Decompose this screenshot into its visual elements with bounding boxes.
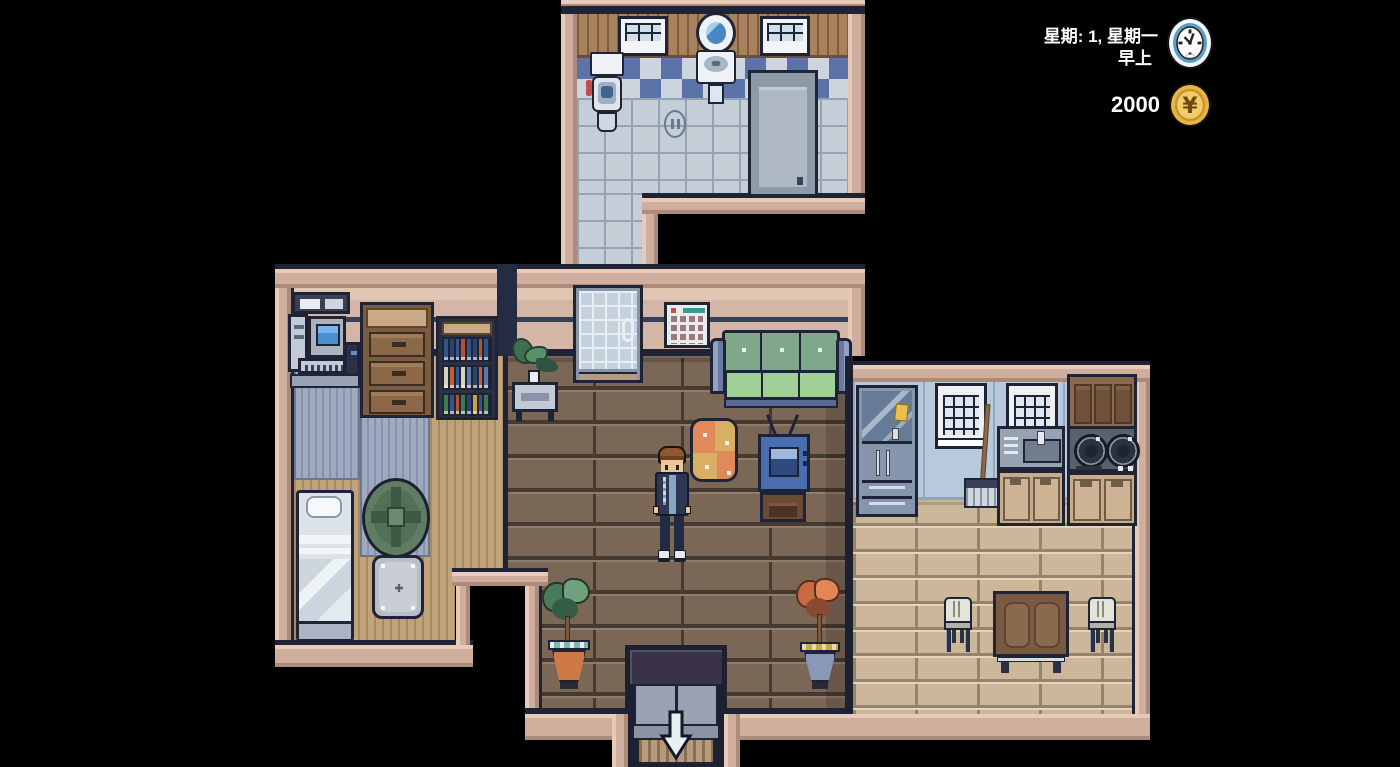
- chest-drawer: [369, 332, 425, 357]
- bookshelf-top: [442, 322, 492, 335]
- book-spine: [450, 339, 454, 360]
- book-spine: [456, 395, 460, 414]
- window-panes: [625, 23, 661, 41]
- sofa-seam: [799, 332, 801, 374]
- door-notch: [1080, 481, 1092, 487]
- bed-sheet-band: [299, 548, 351, 554]
- character-eye: [665, 465, 668, 470]
- bathroom-door[interactable]: [748, 70, 818, 197]
- book-spine: [444, 339, 448, 360]
- exit-trim-left: [612, 714, 628, 767]
- mirror-glass: [706, 22, 726, 44]
- cabinet-door: [1074, 384, 1092, 424]
- bookshelf[interactable]: [436, 316, 498, 420]
- corridor-wall-right: [642, 214, 658, 268]
- calendar-mark: [671, 308, 676, 313]
- notch-cap: [452, 572, 548, 586]
- cabinet-door: [1114, 384, 1132, 424]
- character-shoe: [658, 550, 670, 562]
- kitchen-divider-wall: [845, 356, 853, 714]
- calendar-grid: [671, 316, 703, 344]
- fridge-note: [894, 403, 909, 421]
- sink-faucet: [1037, 431, 1045, 445]
- counter-vent: [1004, 444, 1018, 447]
- character-zipper: [663, 477, 666, 505]
- fridge-drawer-handle: [869, 486, 905, 489]
- tower-button: [351, 351, 357, 355]
- tv-knob: [803, 461, 808, 466]
- book-spine: [467, 367, 471, 388]
- sofa-seam: [760, 332, 762, 374]
- chair-leg: [946, 630, 951, 652]
- hud-money-value: 2000: [1040, 92, 1160, 118]
- character-leg: [674, 516, 684, 552]
- paper-sheet: [325, 299, 343, 309]
- stand-leg: [516, 412, 522, 421]
- printer-slot: [294, 335, 304, 339]
- stove-burner: [1106, 434, 1140, 468]
- kitchen-sink-unit[interactable]: [997, 426, 1065, 526]
- hud-time-of-day: 早上: [1000, 44, 1152, 69]
- desk-shelf: [292, 292, 350, 314]
- book-spine: [473, 367, 477, 388]
- exit-trim-right: [724, 714, 740, 767]
- toilet-bowl: [601, 86, 613, 98]
- shoji-handle: [622, 318, 634, 342]
- dining-chair: [1085, 595, 1119, 657]
- book-spine: [461, 367, 465, 388]
- keyboard: [298, 358, 346, 374]
- desk-front: [290, 374, 360, 388]
- plant-pot: [552, 650, 586, 682]
- book-spine: [484, 395, 488, 414]
- upper-cabinets: [1067, 374, 1137, 430]
- armchair: [690, 418, 738, 482]
- table-leg: [1053, 662, 1061, 673]
- bookshelf-row: [442, 337, 492, 362]
- stove-top: [1067, 426, 1137, 472]
- notch-wall-right: [525, 586, 539, 714]
- player-character[interactable]: [652, 444, 692, 564]
- calendar-header: [683, 308, 705, 313]
- bathroom-corridor-floor: [577, 193, 642, 264]
- character-shoe: [674, 550, 686, 562]
- drain-slit: [671, 119, 674, 129]
- game-viewport: 星期: 1, 星期一 早上 2000 ¥: [0, 0, 1400, 767]
- book-spine: [444, 367, 448, 388]
- table-panel: [1034, 602, 1060, 648]
- fridge-drawer-line: [862, 496, 912, 499]
- door-notch: [1111, 481, 1123, 487]
- notch-void: [473, 586, 525, 714]
- potted-plant-red: [794, 578, 846, 694]
- chair-leg: [952, 630, 956, 643]
- book-spine: [484, 367, 488, 388]
- sofa[interactable]: [710, 326, 852, 412]
- plant-pot-base: [560, 682, 578, 689]
- chair-leg: [1109, 630, 1114, 652]
- stand-table: [512, 382, 558, 412]
- chest-drawer: [369, 361, 425, 386]
- chair-seat: [1088, 621, 1116, 630]
- sofa-base: [724, 398, 838, 408]
- tv-antenna: [766, 414, 777, 436]
- sink-pedestal: [708, 84, 724, 104]
- plant-pot: [804, 652, 836, 682]
- floor-cushion: [372, 555, 424, 619]
- keyboard-keys: [305, 365, 343, 371]
- bed-pillow: [306, 496, 342, 518]
- green-round-rug: [362, 478, 430, 558]
- drawer-handle: [392, 342, 406, 347]
- door-handle: [797, 177, 803, 185]
- stove-knob: [1118, 466, 1123, 471]
- monitor-screen: [316, 324, 340, 346]
- stove-knob: [1128, 466, 1133, 471]
- computer-monitor: [308, 316, 346, 358]
- plant-stand: [508, 336, 560, 424]
- table-leg: [1001, 662, 1009, 673]
- broom: [962, 404, 1002, 512]
- book-spine: [473, 339, 477, 360]
- currency-symbol: ¥: [1182, 94, 1198, 119]
- stand-leg: [548, 412, 554, 421]
- mainroom-wall-top: [275, 269, 865, 288]
- character-hand: [653, 506, 659, 514]
- shoji-window: [573, 285, 643, 383]
- door-notch: [1040, 479, 1051, 485]
- printer-slot: [294, 325, 304, 329]
- drain-slit: [677, 119, 680, 129]
- door-panel: [759, 87, 807, 187]
- bathroom-window-2: [760, 16, 810, 56]
- window-panes: [767, 23, 803, 41]
- plant-pot-rim: [548, 640, 590, 650]
- chair-back-slats: [953, 601, 963, 617]
- counter-vent: [1004, 451, 1018, 454]
- shoji-sill: [579, 372, 637, 380]
- book-spine: [479, 339, 483, 360]
- bedroom-wall-bottom: [275, 645, 478, 667]
- pc-tower: [344, 342, 360, 376]
- fridge-handle: [886, 450, 890, 476]
- plant-pot-base: [812, 682, 828, 689]
- tv-knob: [803, 451, 808, 456]
- bookshelf-row: [442, 393, 492, 416]
- table-top: [993, 591, 1069, 657]
- sofa-seat: [724, 370, 838, 400]
- stand-drawer: [521, 393, 549, 401]
- kitchen-wall-right: [1135, 382, 1150, 714]
- exit-lintel: [630, 650, 722, 684]
- sink-counter: [997, 426, 1065, 470]
- paper-sheet: [300, 299, 320, 309]
- chair-seat: [944, 621, 972, 630]
- chair-back-slats: [1097, 601, 1107, 617]
- bathroom-sink[interactable]: [694, 48, 738, 106]
- stove-handle: [1076, 466, 1102, 470]
- tv-antenna: [788, 414, 799, 436]
- clock-icon: [1166, 16, 1214, 70]
- floor-drain: [664, 110, 686, 138]
- stove-unit[interactable]: [1067, 426, 1137, 526]
- tv-stand: [760, 492, 806, 522]
- book-spine: [479, 367, 483, 388]
- broom-head: [964, 478, 1000, 508]
- book-spine: [456, 367, 460, 388]
- notch-wall-left: [456, 586, 470, 645]
- book-spine: [484, 339, 488, 360]
- bathroom-wall-right: [848, 14, 865, 198]
- character-eye: [676, 465, 679, 470]
- tv-stand-slot: [769, 503, 797, 517]
- broom-handle: [980, 404, 990, 482]
- rug-center: [387, 507, 405, 527]
- cabinet-door: [1094, 384, 1112, 424]
- bathroom-wall-left: [561, 14, 577, 268]
- refrigerator[interactable]: [856, 385, 918, 517]
- stove-burner: [1074, 434, 1108, 468]
- chair-leg: [1104, 630, 1108, 643]
- bathroom-wall-bottom: [642, 198, 865, 214]
- fridge-handle: [876, 450, 880, 476]
- character-hand: [685, 506, 691, 514]
- toilet-base: [597, 112, 617, 132]
- bottom-wall-right: [722, 714, 1150, 740]
- counter-vent: [1004, 437, 1018, 440]
- chair-leg: [965, 630, 970, 652]
- chair-leg: [1096, 630, 1100, 643]
- fridge-magnet: [892, 428, 899, 440]
- door-notch: [1010, 479, 1021, 485]
- potted-plant-green: [540, 578, 596, 694]
- bed-sheet-band: [299, 535, 351, 544]
- book-spine: [450, 395, 454, 414]
- book-spine: [467, 339, 471, 360]
- toilet-tank: [590, 52, 624, 76]
- plant-trunk: [817, 614, 822, 644]
- armchair-patch: [715, 421, 738, 451]
- sink-drain: [712, 61, 720, 66]
- book-spine: [450, 367, 454, 388]
- chest-drawer: [369, 390, 425, 414]
- tv-set[interactable]: [756, 414, 812, 524]
- bookshelf-row: [442, 365, 492, 390]
- chair-leg: [960, 630, 964, 643]
- yen-coin-icon: ¥: [1168, 82, 1212, 128]
- sink-cabinet: [997, 470, 1065, 526]
- book-spine: [473, 395, 477, 414]
- drawer-handle: [392, 400, 406, 405]
- tv-screen: [769, 447, 799, 477]
- bed[interactable]: [296, 490, 354, 642]
- sofa-seam: [761, 372, 763, 398]
- bed-footboard: [299, 621, 351, 639]
- dining-chair: [941, 595, 975, 657]
- exit-arrow-icon[interactable]: [658, 710, 694, 762]
- wall-calendar: [664, 302, 710, 348]
- dining-table: [993, 591, 1069, 673]
- tv-body: [758, 434, 810, 492]
- table-panel: [1004, 602, 1030, 648]
- sofa-armrest-left: [710, 338, 726, 394]
- toilet[interactable]: [586, 50, 628, 136]
- book-spine: [467, 395, 471, 414]
- character-leg: [660, 516, 670, 552]
- book-spine: [461, 395, 465, 414]
- computer-desk[interactable]: [288, 290, 364, 398]
- character-shirt: [669, 475, 676, 514]
- chair-leg: [1090, 630, 1095, 652]
- drawer-handle: [392, 371, 406, 376]
- book-spine: [456, 339, 460, 360]
- bed-blanket: [299, 559, 351, 621]
- fridge-drawer-handle: [869, 502, 905, 505]
- book-spine: [479, 395, 483, 414]
- fridge-drawer-line: [862, 480, 912, 483]
- book-spine: [461, 339, 465, 360]
- sofa-seam: [798, 372, 800, 398]
- book-spine: [444, 395, 448, 414]
- drawer-chest: [360, 302, 434, 418]
- stove-cabinet: [1067, 472, 1137, 526]
- chest-top: [366, 308, 428, 328]
- exit-doorway[interactable]: [625, 645, 727, 767]
- plant-pot-rim: [800, 642, 840, 652]
